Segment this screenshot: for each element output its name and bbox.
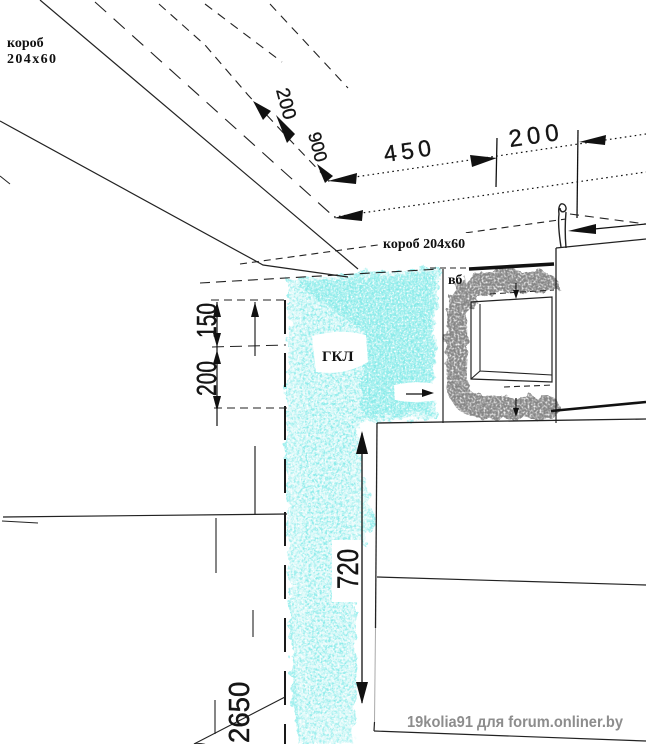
svg-text:2650: 2650	[222, 682, 255, 743]
svg-text:короб 204х60: короб 204х60	[383, 237, 465, 252]
svg-text:720: 720	[332, 549, 365, 589]
svg-text:204х60: 204х60	[7, 52, 57, 67]
svg-text:короб: короб	[7, 36, 44, 51]
svg-text:ГКЛ: ГКЛ	[322, 349, 354, 365]
svg-text:150: 150	[192, 303, 222, 338]
svg-text:19kolia91 для forum.onliner.by: 19kolia91 для forum.onliner.by	[407, 714, 623, 731]
svg-text:вб: вб	[448, 273, 462, 288]
svg-text:200: 200	[192, 361, 222, 396]
